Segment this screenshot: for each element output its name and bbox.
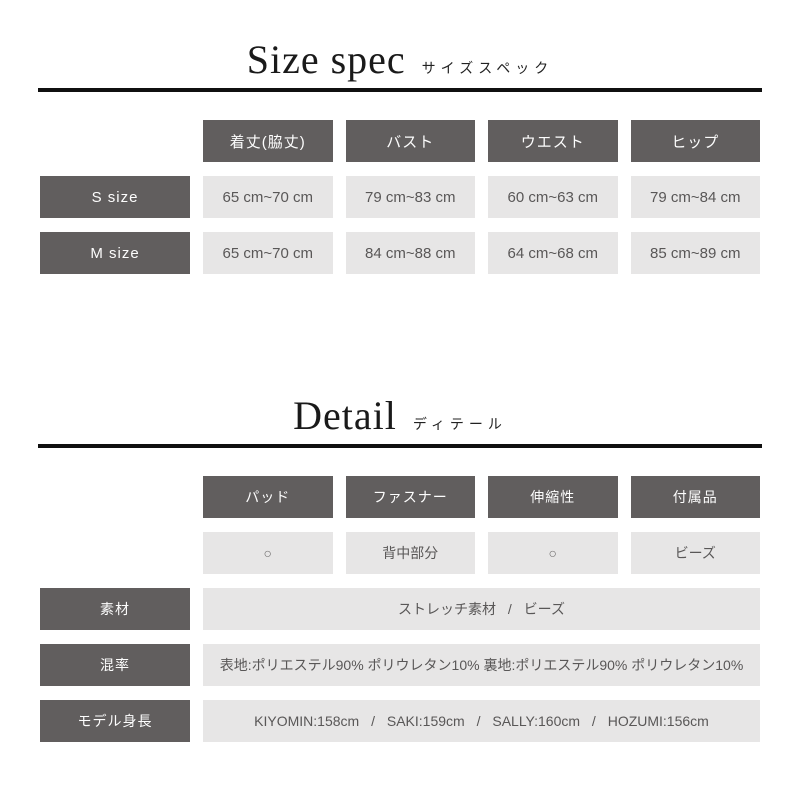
size-spec-title-ja: サイズスペック	[422, 61, 554, 75]
size-spec-cell-m-waist: 64 cm~68 cm	[488, 232, 618, 274]
size-spec-col-header-length: 着丈(脇丈)	[203, 120, 333, 162]
detail-title-ja: ディテール	[413, 417, 507, 431]
size-spec-row-header-m-size: M size	[40, 232, 190, 274]
detail-col-header-fastener: ファスナー	[346, 476, 476, 518]
detail-values-spacer	[40, 532, 190, 574]
detail-col-header-stretch: 伸縮性	[488, 476, 618, 518]
detail-col-header-pad: パッド	[203, 476, 333, 518]
detail-value-fastener: 背中部分	[346, 532, 476, 574]
detail-blend-value: 表地:ポリエステル90% ポリウレタン10% 裏地:ポリエステル90% ポリウレ…	[203, 644, 760, 686]
size-spec-cell-m-length: 65 cm~70 cm	[203, 232, 333, 274]
detail-row-header-blend: 混率	[40, 644, 190, 686]
size-guide-page: Size spec サイズスペック 着丈(脇丈) バスト ウエスト ヒップ S …	[0, 0, 800, 742]
size-spec-cell-m-bust: 84 cm~88 cm	[346, 232, 476, 274]
detail-value-pad: ○	[203, 532, 333, 574]
detail-model-height-value: KIYOMIN:158cm / SAKI:159cm / SALLY:160cm…	[203, 700, 760, 742]
size-spec-title: Size spec サイズスペック	[0, 0, 800, 80]
size-spec-cell-s-length: 65 cm~70 cm	[203, 176, 333, 218]
size-spec-col-header-bust: バスト	[346, 120, 476, 162]
detail-title: Detail ディテール	[0, 274, 800, 436]
detail-value-accessory: ビーズ	[631, 532, 761, 574]
detail-table: パッド ファスナー 伸縮性 付属品 ○ 背中部分 ○ ビーズ 素材 ストレッチ素…	[40, 476, 760, 742]
size-spec-section: Size spec サイズスペック 着丈(脇丈) バスト ウエスト ヒップ S …	[0, 0, 800, 274]
size-spec-divider	[38, 88, 762, 92]
detail-divider	[38, 444, 762, 448]
size-spec-cell-s-bust: 79 cm~83 cm	[346, 176, 476, 218]
detail-row-header-material: 素材	[40, 588, 190, 630]
detail-corner-spacer	[40, 476, 190, 518]
detail-row-header-model-height: モデル身長	[40, 700, 190, 742]
detail-title-en: Detail	[293, 396, 397, 436]
size-spec-corner-spacer	[40, 120, 190, 162]
size-spec-cell-s-waist: 60 cm~63 cm	[488, 176, 618, 218]
size-spec-row-header-s-size: S size	[40, 176, 190, 218]
size-spec-col-header-hip: ヒップ	[631, 120, 761, 162]
size-spec-title-en: Size spec	[247, 40, 406, 80]
detail-material-value: ストレッチ素材 / ビーズ	[203, 588, 760, 630]
size-spec-table: 着丈(脇丈) バスト ウエスト ヒップ S size 65 cm~70 cm 7…	[40, 120, 760, 274]
detail-value-stretch: ○	[488, 532, 618, 574]
size-spec-cell-s-hip: 79 cm~84 cm	[631, 176, 761, 218]
size-spec-cell-m-hip: 85 cm~89 cm	[631, 232, 761, 274]
detail-section: Detail ディテール パッド ファスナー 伸縮性 付属品 ○ 背中部分 ○ …	[0, 274, 800, 742]
size-spec-col-header-waist: ウエスト	[488, 120, 618, 162]
detail-col-header-accessory: 付属品	[631, 476, 761, 518]
